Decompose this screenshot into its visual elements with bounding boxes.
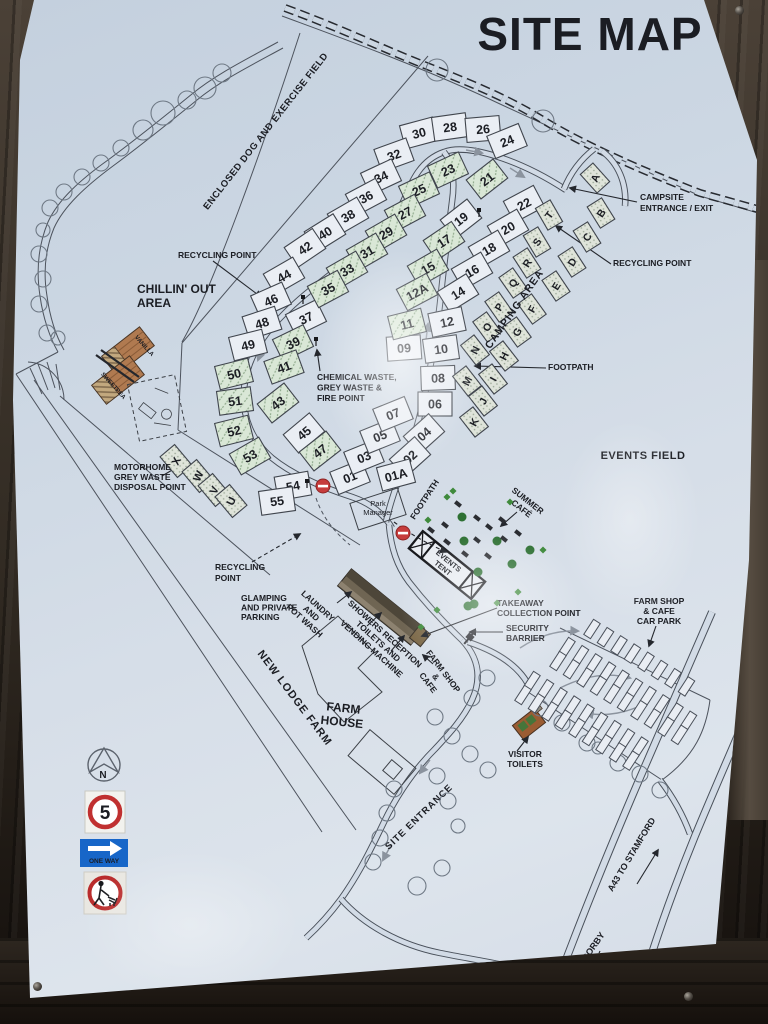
tree-icon: [429, 768, 445, 784]
svg-text:10: 10: [433, 342, 449, 358]
cafe-tree-icon: [458, 513, 467, 522]
picnic-table-icon: [441, 521, 449, 529]
tree-icon: [178, 91, 196, 109]
parking-bay: [671, 725, 688, 744]
svg-text:51: 51: [227, 394, 243, 410]
pitch-D: D: [558, 247, 586, 277]
svg-text:08: 08: [431, 371, 445, 385]
svg-text:28: 28: [442, 120, 458, 136]
screw-icon: [33, 982, 42, 991]
no-entry-icon: [316, 479, 330, 493]
bush-icon: [424, 516, 431, 523]
pitch-43: 43: [257, 383, 299, 423]
tree-icon: [451, 819, 465, 833]
roads: [244, 8, 768, 1024]
parking-bay: [609, 743, 626, 762]
pitch-49: 49: [229, 329, 268, 361]
parking-bay: [644, 709, 661, 728]
label-dog-field: ENCLOSED DOG AND EXERCISE FIELD: [201, 51, 330, 212]
tree-icon: [151, 101, 175, 125]
pitch-B: B: [587, 198, 615, 228]
pitch-01A: 01A: [376, 459, 415, 491]
cafe-tree-icon: [508, 560, 517, 569]
site-map-svg: 3028262422201918161412100908060402010305…: [0, 0, 768, 1024]
picnic-table-icon: [484, 552, 492, 560]
pitch-28: 28: [431, 113, 468, 141]
parking-bay: [584, 619, 601, 638]
pitch-41: 41: [264, 350, 304, 384]
screw-icon: [735, 6, 744, 15]
parking-bay: [563, 659, 580, 678]
label-takeaway: TAKEAWAYCOLLECTION POINT: [497, 598, 581, 618]
bush-icon: [539, 546, 546, 553]
tree-icon: [113, 140, 129, 156]
tree-icon: [427, 709, 443, 725]
picnic-table-icon: [514, 529, 522, 537]
parking-bay: [596, 734, 613, 753]
label-recycling-e: RECYCLING POINT: [613, 258, 692, 268]
label-visitor-toilets: VISITORTOILETS: [507, 749, 543, 769]
parking-bay: [528, 693, 545, 712]
label-recycling-s: RECYCLINGPOINT: [215, 562, 265, 583]
picnic-table-icon: [454, 500, 462, 508]
label-farm-house: FARMHOUSE: [320, 699, 365, 731]
label-car-park: FARM SHOP& CAFECAR PARK: [634, 596, 685, 626]
tree-icon: [434, 860, 450, 876]
pitch-E: E: [542, 271, 570, 301]
sign-board: 3028262422201918161412100908060402010305…: [0, 0, 768, 1024]
bush-icon: [449, 487, 456, 494]
label-north: N: [99, 770, 106, 781]
pitch-55: 55: [258, 487, 295, 515]
label-events-field: EVENTS FIELD: [601, 450, 686, 462]
cafe-tree-icon: [526, 546, 535, 555]
svg-text:09: 09: [397, 341, 412, 356]
svg-text:26: 26: [476, 122, 491, 137]
tree-icon: [35, 271, 51, 287]
parking-bay: [638, 652, 655, 671]
pitch-52: 52: [215, 415, 254, 447]
bush-icon: [443, 493, 450, 500]
tree-icon: [93, 155, 109, 171]
picnic-table-icon: [427, 526, 435, 534]
svg-text:06: 06: [428, 398, 442, 412]
parking-bay: [590, 676, 607, 695]
parking-bay: [597, 627, 614, 646]
parking-bay: [604, 684, 621, 703]
parking-bay: [651, 660, 668, 679]
pitch-08: 08: [421, 365, 456, 390]
tree-icon: [31, 296, 47, 312]
tree-icon: [480, 762, 496, 778]
picnic-table-icon: [443, 538, 451, 546]
cafe-tree-icon: [460, 537, 469, 546]
tree-icon: [133, 120, 153, 140]
label-footpath-road: FOOTPATH: [408, 478, 441, 522]
tree-icon: [479, 670, 495, 686]
pitch-12: 12: [428, 307, 466, 338]
pitch-06: 06: [418, 392, 452, 416]
tree-icon: [408, 877, 426, 895]
parking-bay: [550, 651, 567, 670]
no-entry-icon: [396, 526, 410, 540]
bush-icon: [514, 588, 521, 595]
label-footpath-e: FOOTPATH: [548, 362, 593, 372]
no-dog-fouling-sign: [84, 872, 126, 914]
pitch-A: A: [580, 163, 609, 193]
label-security-barrier: SECURITYBARRIER: [506, 623, 549, 643]
parking-bay: [515, 685, 532, 704]
tree-icon: [462, 746, 478, 762]
picnic-table-icon: [473, 514, 481, 522]
picnic-table-icon: [461, 550, 469, 558]
route-arrows: [258, 150, 648, 860]
cafe-tree-icon: [470, 600, 479, 609]
screw-icon: [684, 992, 693, 1001]
label-chemical-waste: CHEMICAL WASTE,GREY WASTE &FIRE POINT: [317, 372, 397, 403]
parking-bay: [611, 636, 628, 655]
photo-of-site-map-sign: { "sign": { "title": "SITE MAP" }, "map"…: [0, 0, 768, 1024]
picnic-table-icon: [485, 523, 493, 531]
parking-bay: [631, 700, 648, 719]
label-one-way: ONE WAY: [89, 858, 120, 865]
pitch-09: 09: [386, 335, 422, 361]
pitch-21: 21: [466, 159, 508, 199]
pitch-C: C: [573, 222, 601, 252]
pitch-51: 51: [216, 387, 253, 415]
svg-text:55: 55: [269, 494, 285, 510]
play-area: [127, 375, 186, 442]
tree-icon: [74, 169, 90, 185]
cafe-tree-icon: [474, 568, 483, 577]
label-speed-5: 5: [100, 803, 111, 824]
label-laundry: LAUNDRYANDPOT WASH: [284, 587, 338, 640]
tree-icon: [42, 200, 58, 216]
svg-text:12: 12: [439, 314, 456, 331]
label-a43-stamford: A43 TO STAMFORD: [605, 815, 657, 893]
parking-bay: [624, 644, 641, 663]
cafe-tree-icon: [493, 537, 502, 546]
picnic-table-icon: [473, 536, 481, 544]
label-recycling-nw: RECYCLING POINT: [178, 250, 257, 260]
label-title: SITE MAP: [477, 8, 702, 60]
pitch-10: 10: [422, 335, 459, 363]
